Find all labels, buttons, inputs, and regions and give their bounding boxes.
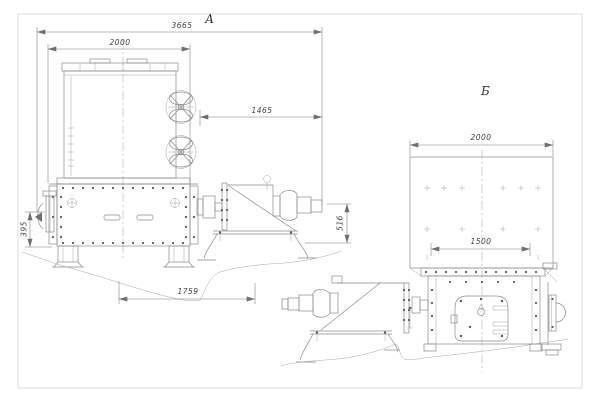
view-a-top-rail bbox=[62, 59, 178, 71]
drawing-linework bbox=[0, 0, 600, 400]
dim-1759-label: 1759 bbox=[158, 287, 218, 296]
drive-guard-b bbox=[321, 283, 404, 330]
drive-base-rail bbox=[213, 231, 298, 234]
hatch-latch bbox=[451, 315, 457, 323]
view-a-drive bbox=[197, 176, 322, 261]
dim-1500-label: 1500 bbox=[451, 237, 511, 246]
dim-516-label: 516 bbox=[336, 203, 345, 243]
view-b-drive bbox=[282, 276, 428, 362]
view-b-label: Б bbox=[481, 84, 490, 98]
view-b-hopper bbox=[410, 157, 553, 268]
callout-balloon bbox=[264, 176, 271, 183]
view-b-flange bbox=[410, 268, 553, 276]
inspection-slot-right bbox=[137, 215, 153, 220]
drive-base-rail-b bbox=[310, 331, 392, 334]
view-a bbox=[22, 27, 351, 304]
dim-2000b-label: 2000 bbox=[451, 133, 511, 142]
hatch-handle-icon bbox=[478, 304, 485, 316]
dim-2000a-label: 2000 bbox=[90, 38, 150, 47]
casing-bolts bbox=[52, 187, 195, 244]
view-a-hopper bbox=[64, 71, 176, 178]
drive-guard bbox=[227, 185, 296, 231]
handwheel-bottom-icon bbox=[166, 136, 196, 169]
view-b-hatch-door bbox=[451, 296, 508, 341]
lug-hole-left bbox=[67, 198, 77, 208]
motor-body bbox=[280, 191, 297, 221]
dim-395-label: 395 bbox=[20, 209, 29, 249]
lug-hole-right bbox=[170, 198, 180, 208]
view-b-foundation-line bbox=[281, 339, 568, 366]
view-b bbox=[281, 140, 568, 372]
sheet-frame bbox=[18, 14, 582, 388]
view-a-legs bbox=[52, 246, 195, 267]
dim-1465-label: 1465 bbox=[232, 106, 292, 115]
dim-3665-label: 3665 bbox=[152, 21, 212, 30]
motor-body-b bbox=[313, 290, 330, 318]
drawing-sheet: А 3665 2000 1465 1759 395 516 Б 2000 150… bbox=[0, 0, 600, 400]
inspection-slot-left bbox=[104, 215, 120, 220]
view-a-casing bbox=[49, 178, 198, 246]
view-b-feet bbox=[424, 344, 542, 351]
handwheel-top-icon bbox=[166, 91, 196, 124]
